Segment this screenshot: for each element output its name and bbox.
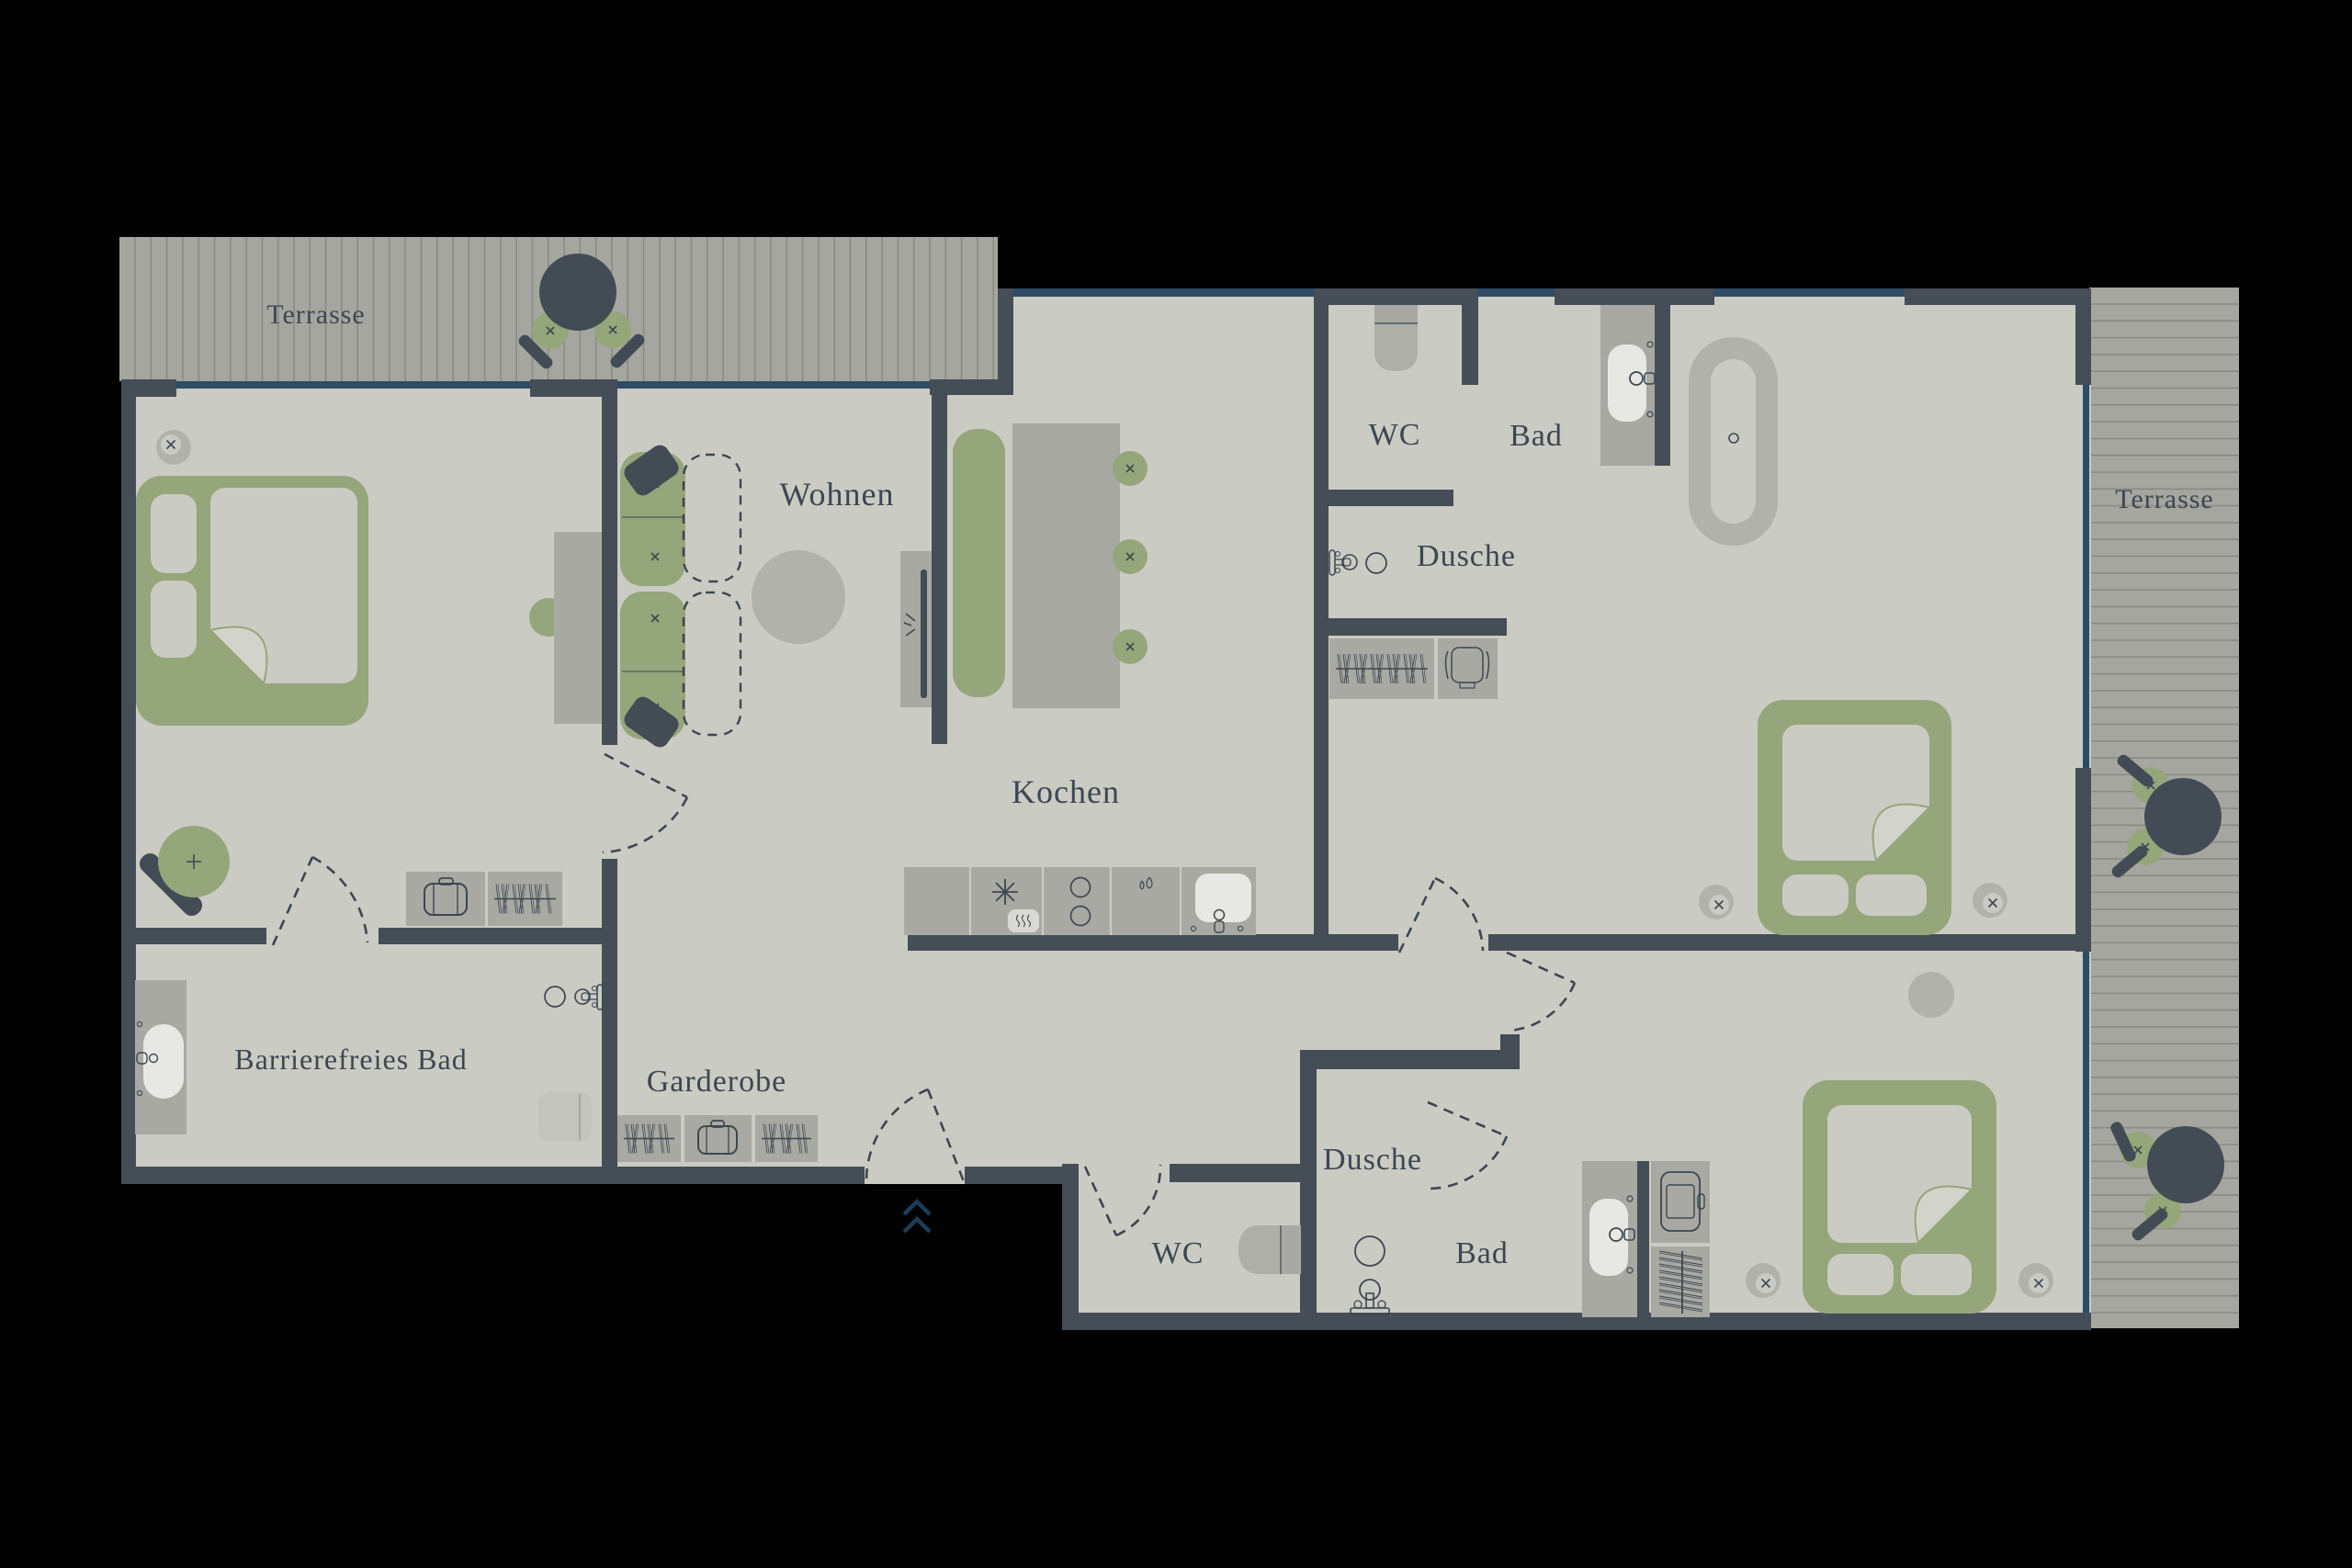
svg-text:Kochen: Kochen (1012, 773, 1120, 810)
svg-text:Wohnen: Wohnen (779, 476, 894, 513)
svg-text:Bad: Bad (1510, 419, 1563, 453)
svg-text:Dusche: Dusche (1323, 1143, 1422, 1177)
svg-text:Terrasse: Terrasse (266, 299, 366, 330)
svg-text:Barrierefreies Bad: Barrierefreies Bad (234, 1043, 467, 1076)
svg-text:WC: WC (1152, 1236, 1204, 1270)
svg-text:WC: WC (1369, 418, 1421, 452)
svg-text:Garderobe: Garderobe (647, 1065, 786, 1099)
svg-text:Bad: Bad (1455, 1236, 1509, 1270)
svg-text:Terrasse: Terrasse (2115, 484, 2214, 514)
svg-text:Dusche: Dusche (1417, 539, 1516, 573)
